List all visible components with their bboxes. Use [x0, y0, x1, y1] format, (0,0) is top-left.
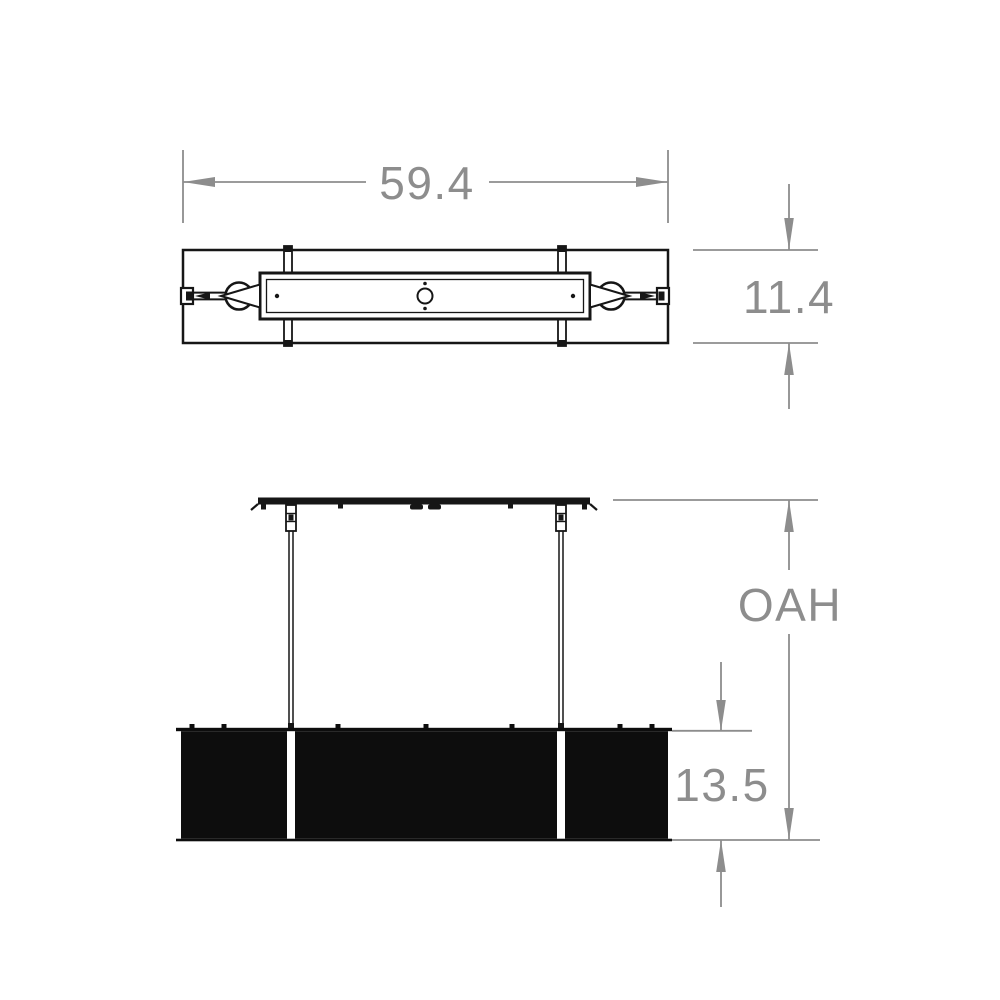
shade-panel-middle	[295, 731, 557, 839]
stem-right	[556, 505, 566, 729]
depth-label: 11.4	[743, 271, 835, 323]
shade-clip-nub	[618, 724, 623, 729]
shade-bottom-rim	[176, 839, 672, 842]
arrowhead-down	[784, 218, 794, 250]
arrowhead-up	[784, 343, 794, 375]
end-bracket-block	[186, 292, 192, 301]
shade-clip-nub	[424, 724, 429, 729]
canopy-center-mount	[428, 505, 441, 510]
clip-tab-cap	[284, 340, 292, 346]
canopy-detail-dot	[338, 505, 343, 509]
stem-bracket-block	[559, 515, 564, 521]
oah-label: OAH	[738, 579, 842, 631]
shade	[176, 724, 672, 841]
width-label: 59.4	[379, 157, 475, 209]
drawing-page: 59.4 11.4 OAH 1	[0, 0, 1000, 1000]
shade-panel-left	[181, 731, 287, 839]
shade-clip-nub	[650, 724, 655, 729]
clip-tab-cap	[284, 246, 292, 252]
arrowhead-left	[183, 177, 215, 187]
shade-clip-nub	[510, 724, 515, 729]
canopy-bar-body	[258, 498, 590, 505]
shade-height-label: 13.5	[674, 759, 770, 811]
center-mark-dot	[423, 307, 427, 311]
arrowhead-right	[636, 177, 668, 187]
stem-left	[286, 505, 296, 729]
stem-bracket-block	[289, 515, 294, 521]
center-stem-hole	[418, 289, 433, 304]
dimension-shade-height: 13.5	[672, 662, 770, 907]
center-mark-dot	[423, 282, 427, 286]
canopy-detail-dot	[582, 505, 587, 510]
front-view	[176, 498, 672, 842]
top-view	[181, 246, 669, 346]
arrowhead-down	[784, 808, 794, 840]
canopy-bar	[251, 498, 597, 511]
end-bracket-block	[659, 292, 665, 301]
shade-clip-nub	[222, 724, 227, 729]
technical-drawing: 59.4 11.4 OAH 1	[0, 0, 1000, 1000]
arrowhead-up	[784, 500, 794, 532]
arrowhead-up	[716, 840, 726, 872]
canopy-detail-dot	[261, 505, 266, 510]
canopy-end-tip	[251, 504, 258, 510]
canopy-detail-dot	[508, 505, 513, 509]
clip-tab-cap	[558, 246, 566, 252]
dimension-width: 59.4	[183, 150, 668, 223]
dimension-depth: 11.4	[693, 184, 835, 409]
clip-tab-cap	[558, 340, 566, 346]
arrowhead-down	[716, 700, 726, 731]
canopy-center-mount	[410, 505, 423, 510]
shade-panel-right	[565, 731, 668, 839]
shade-clip-nub	[190, 724, 195, 729]
screw-dot	[571, 294, 575, 298]
shade-clip-nub	[336, 724, 341, 729]
screw-dot	[275, 294, 279, 298]
canopy-end-tip	[590, 504, 597, 510]
